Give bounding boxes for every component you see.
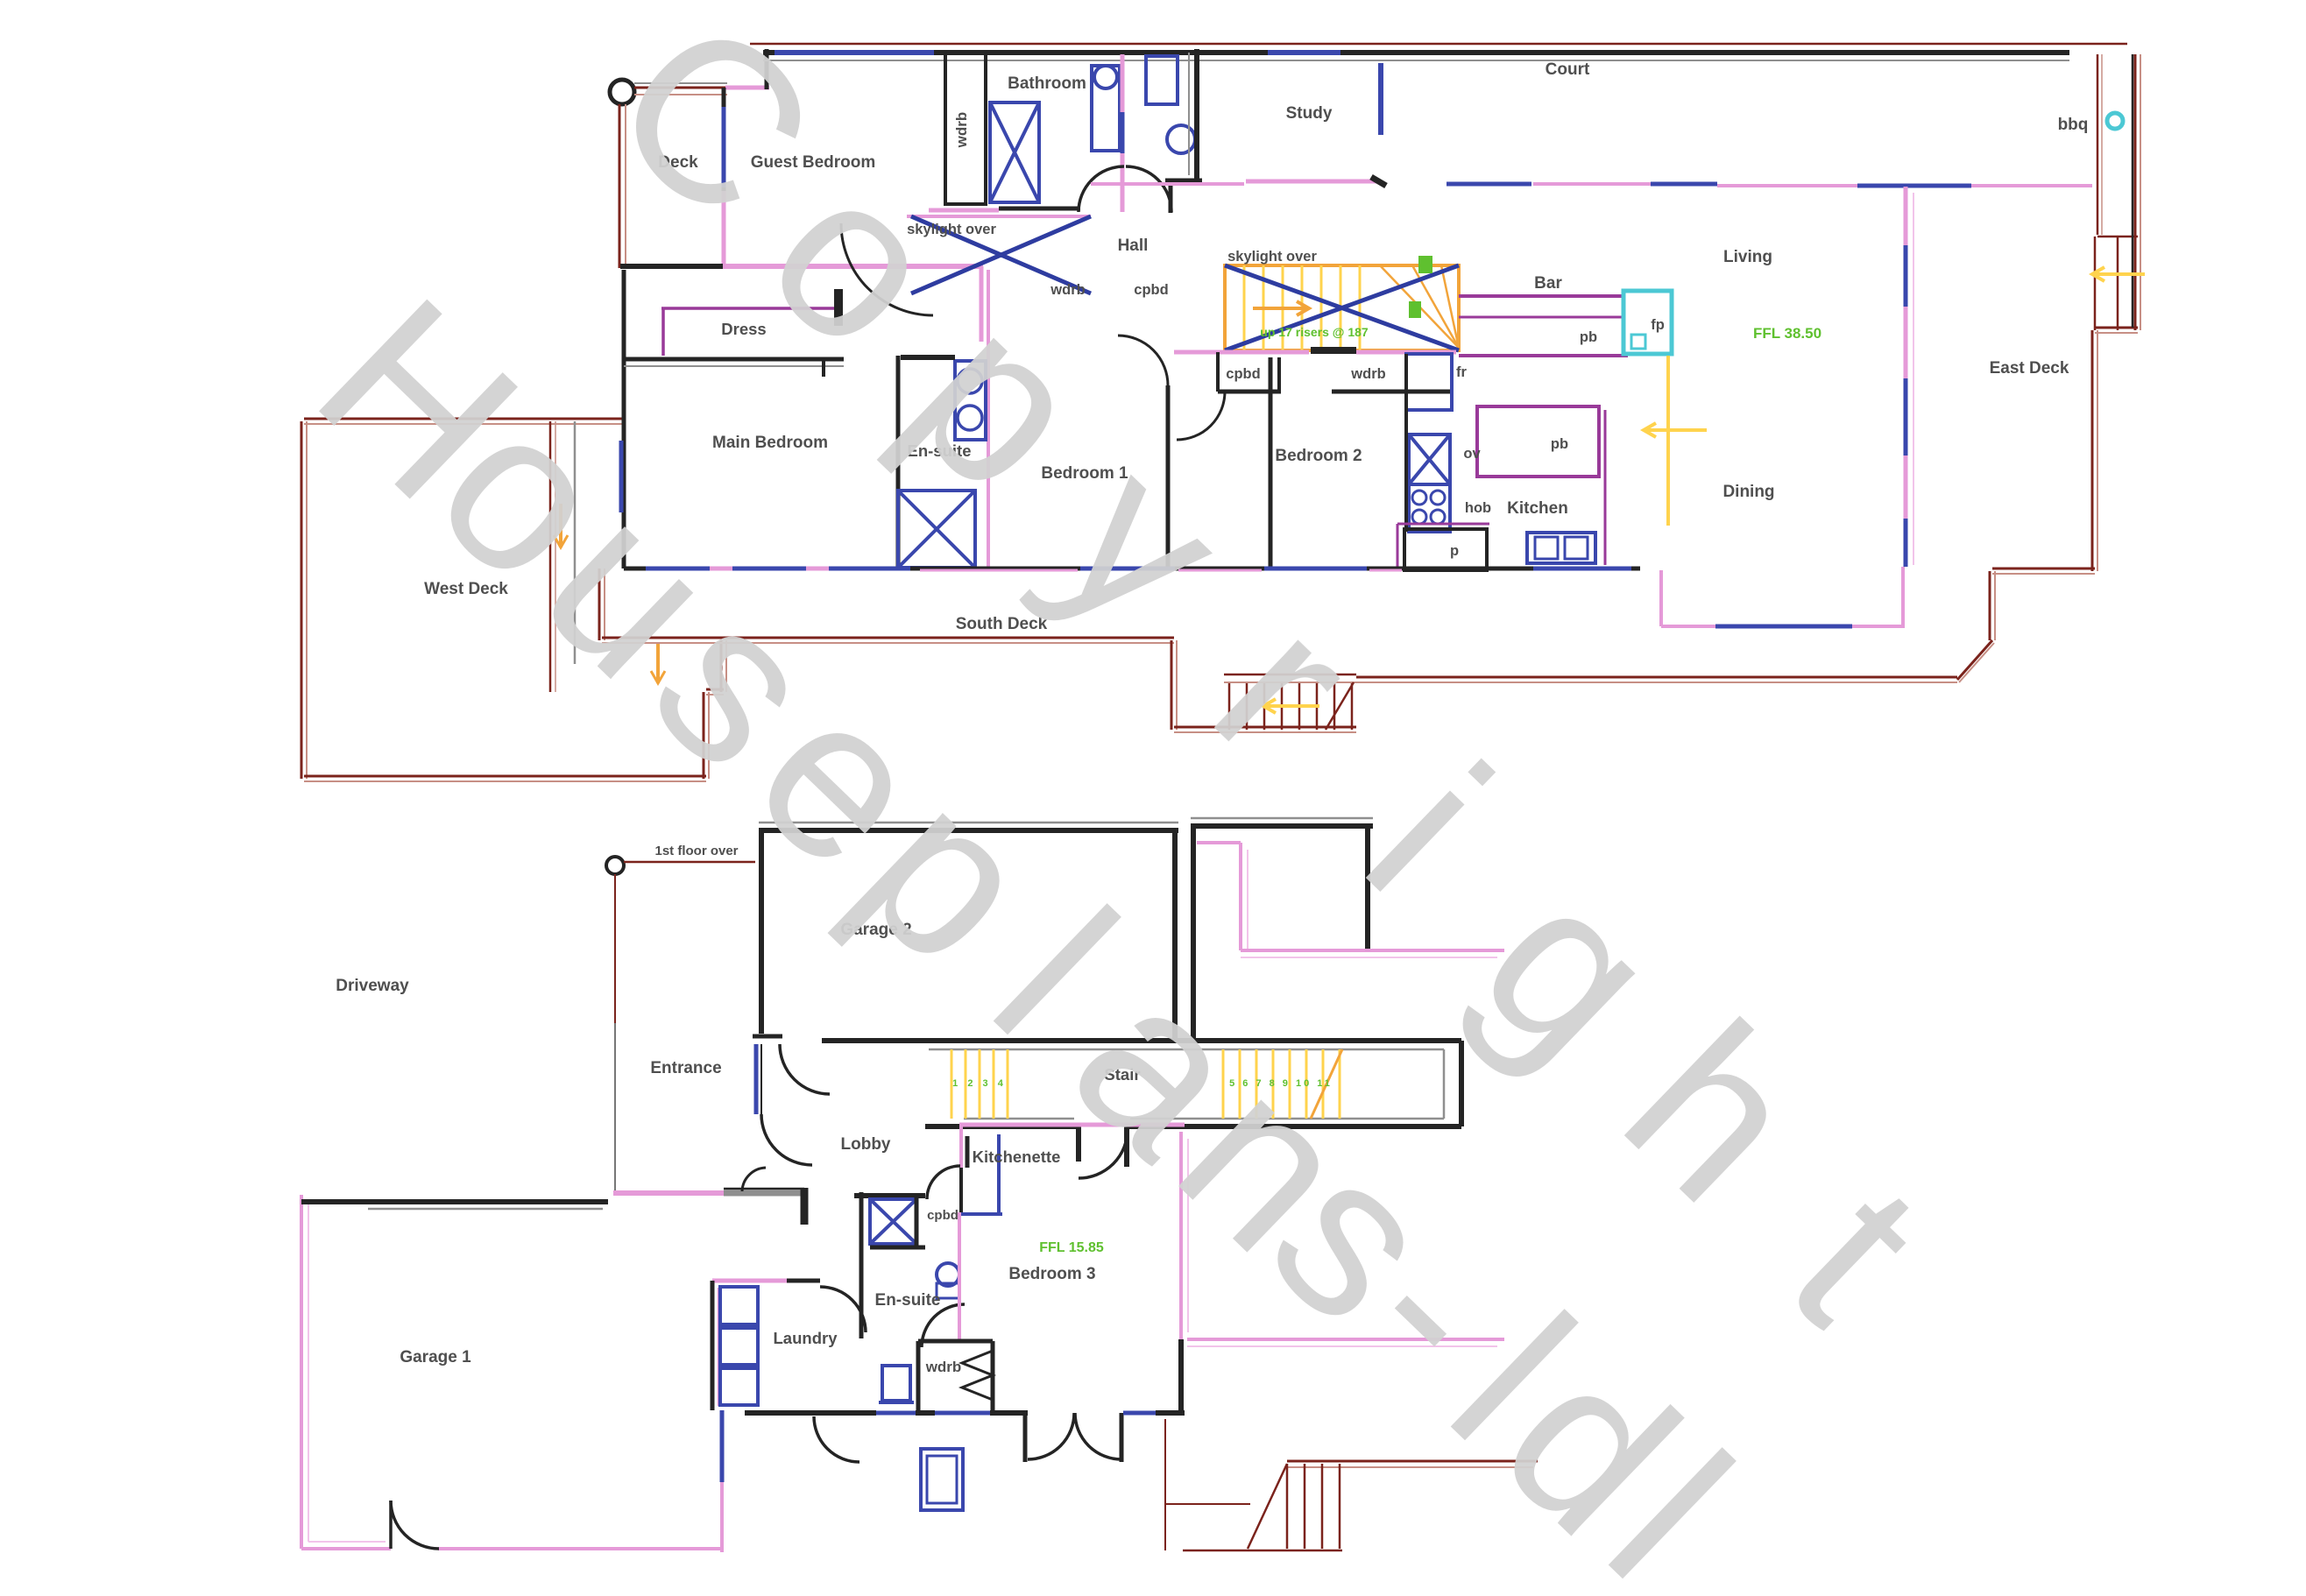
svg-text:En-suite: En-suite	[875, 1291, 941, 1310]
svg-text:Laundry: Laundry	[774, 1329, 838, 1347]
svg-text:up 17 risers @ 187: up 17 risers @ 187	[1260, 325, 1369, 339]
svg-text:Bedroom 3: Bedroom 3	[1008, 1265, 1095, 1283]
svg-text:fp: fp	[1651, 317, 1665, 333]
svg-text:cpbd: cpbd	[1226, 366, 1260, 382]
svg-text:wdrb: wdrb	[1350, 366, 1385, 382]
svg-text:Living: Living	[1723, 248, 1772, 266]
svg-text:Bedroom 1: Bedroom 1	[1041, 464, 1128, 483]
svg-text:cpbd: cpbd	[1134, 282, 1168, 298]
svg-text:skylight over: skylight over	[1227, 249, 1317, 265]
svg-text:South Deck: South Deck	[956, 615, 1048, 633]
svg-text:Driveway: Driveway	[336, 977, 409, 995]
svg-text:FFL 15.85: FFL 15.85	[1039, 1240, 1104, 1255]
svg-text:pb: pb	[1580, 329, 1597, 345]
svg-text:Bar: Bar	[1534, 274, 1562, 293]
svg-text:wdrb: wdrb	[953, 112, 970, 149]
svg-text:1 2 3 4: 1 2 3 4	[952, 1078, 1007, 1089]
svg-text:Kitchenette: Kitchenette	[973, 1148, 1061, 1166]
svg-text:Court: Court	[1546, 60, 1590, 79]
svg-text:bbq: bbq	[2058, 116, 2089, 134]
svg-text:Study: Study	[1286, 104, 1333, 123]
svg-text:1st floor over: 1st floor over	[654, 844, 738, 858]
svg-text:pb: pb	[1551, 436, 1568, 452]
svg-text:Hall: Hall	[1118, 237, 1149, 255]
svg-text:East Deck: East Deck	[1990, 359, 2069, 378]
svg-text:wdrb: wdrb	[925, 1359, 962, 1375]
svg-text:Bathroom: Bathroom	[1008, 74, 1086, 93]
svg-text:Dining: Dining	[1722, 483, 1774, 501]
svg-text:ov: ov	[1463, 446, 1481, 462]
svg-text:Entrance: Entrance	[650, 1059, 721, 1077]
svg-text:FFL 38.50: FFL 38.50	[1753, 325, 1821, 342]
svg-text:Main Bedroom: Main Bedroom	[712, 434, 828, 452]
svg-text:Bedroom 2: Bedroom 2	[1275, 447, 1362, 465]
svg-text:hob: hob	[1465, 500, 1491, 516]
svg-text:Lobby: Lobby	[841, 1135, 891, 1154]
svg-text:cpbd: cpbd	[927, 1208, 958, 1223]
svg-text:Garage 1: Garage 1	[400, 1348, 471, 1366]
svg-text:p: p	[1450, 543, 1459, 559]
svg-text:fr: fr	[1456, 364, 1467, 380]
svg-text:Kitchen: Kitchen	[1507, 499, 1568, 518]
